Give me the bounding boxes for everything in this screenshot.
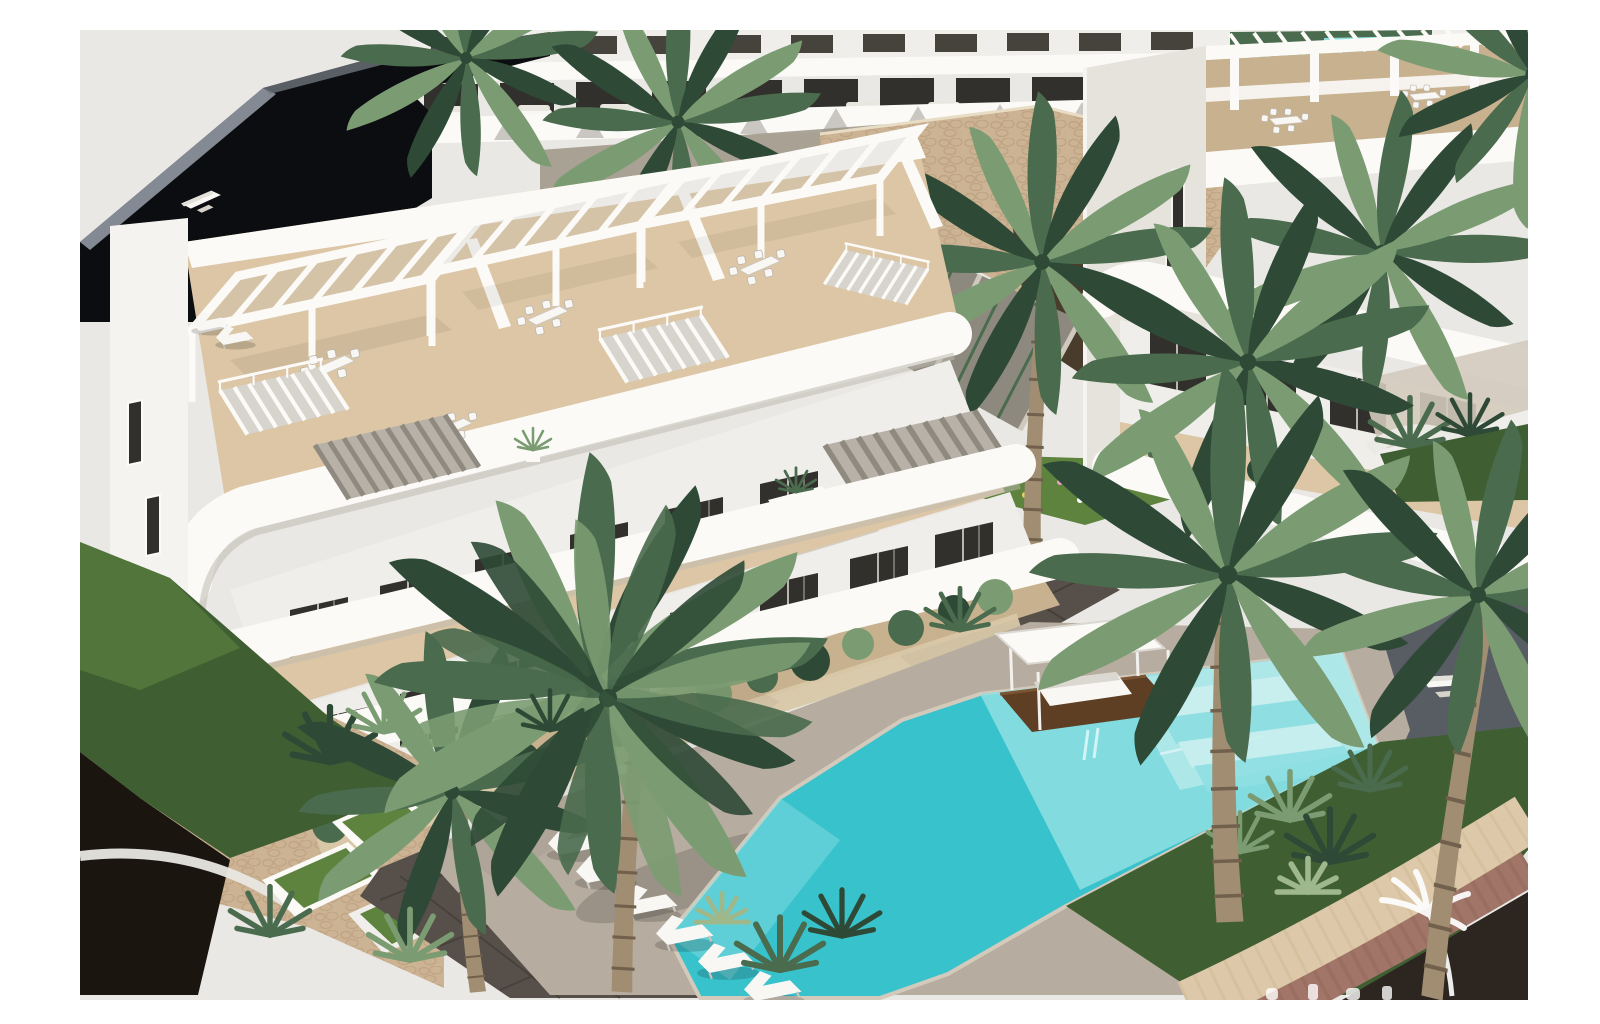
- render-scene: [80, 30, 1528, 1000]
- render-canvas: [0, 0, 1600, 1024]
- photo: [80, 30, 1528, 1000]
